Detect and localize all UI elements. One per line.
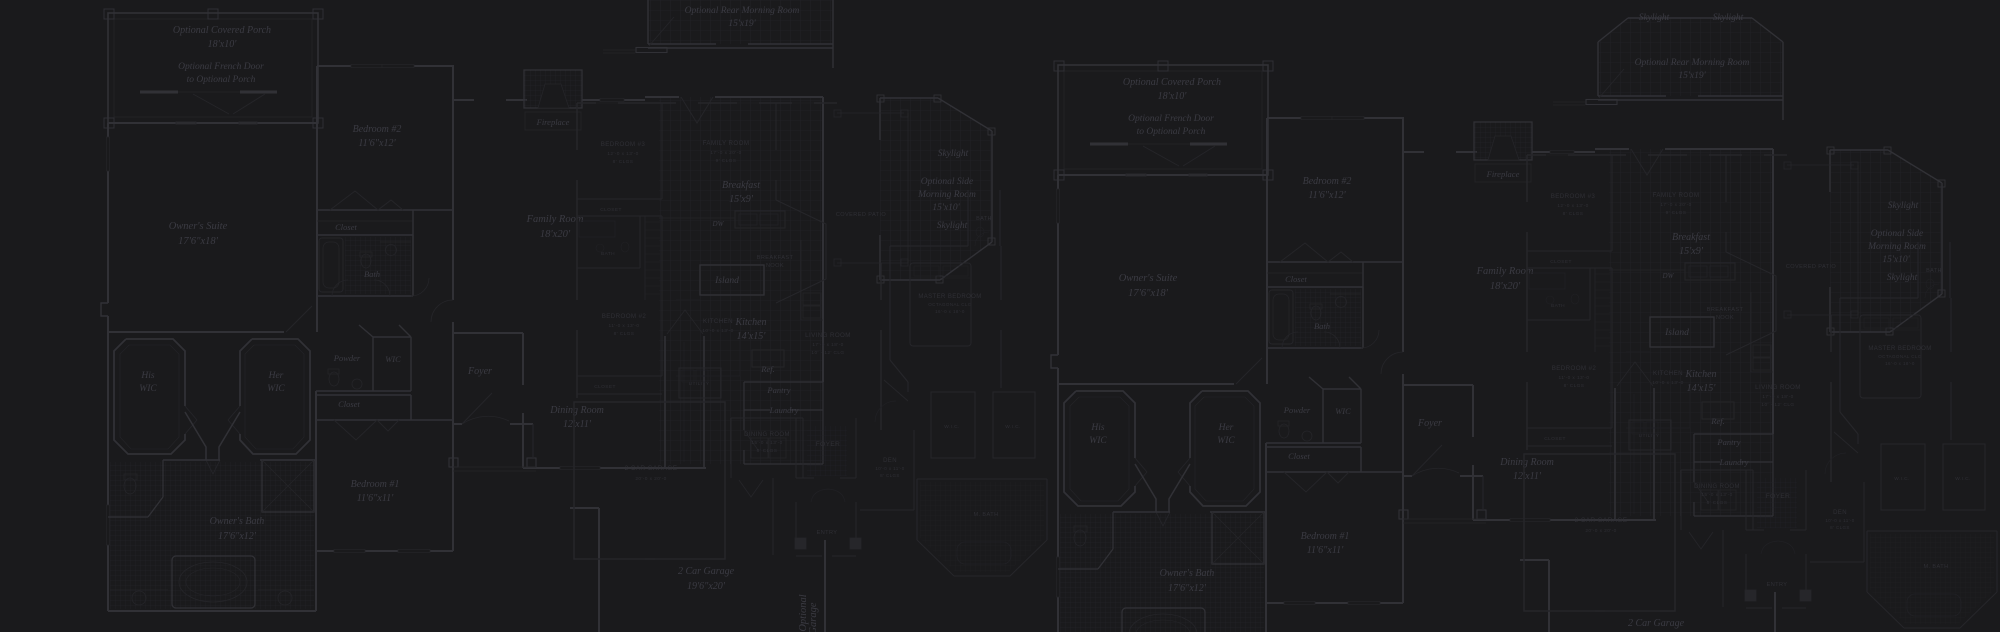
svg-text:Optional Side: Optional Side (1871, 229, 1924, 239)
svg-text:9' CLGS: 9' CLGS (716, 158, 737, 164)
svg-text:Dining Room: Dining Room (1499, 457, 1554, 468)
svg-text:NOOK: NOOK (766, 263, 784, 269)
svg-text:Laundry: Laundry (769, 405, 799, 415)
svg-text:BATH: BATH (601, 251, 615, 257)
svg-text:10' - 12' CLG: 10' - 12' CLG (811, 350, 844, 356)
svg-text:Pantry: Pantry (1716, 437, 1740, 447)
svg-text:DEN: DEN (1833, 510, 1847, 516)
svg-text:BATH: BATH (976, 216, 992, 222)
svg-text:Closet: Closet (1288, 451, 1310, 461)
svg-text:15'x10': 15'x10' (1882, 255, 1910, 265)
svg-text:Breakfast: Breakfast (1672, 232, 1710, 243)
svg-text:17'-0 x 20'-0: 17'-0 x 20'-0 (710, 150, 741, 156)
svg-text:ENTRY: ENTRY (817, 530, 838, 536)
svg-text:17'6"x18': 17'6"x18' (1128, 288, 1169, 299)
svg-text:W.I.C.: W.I.C. (1955, 476, 1970, 482)
svg-text:17'6"x18': 17'6"x18' (178, 236, 219, 247)
svg-text:WIC: WIC (1335, 406, 1351, 416)
svg-text:His: His (1090, 423, 1105, 433)
svg-text:FOYER: FOYER (1766, 493, 1790, 500)
svg-text:11'6"x12': 11'6"x12' (358, 138, 396, 149)
svg-text:Bath: Bath (364, 269, 380, 279)
svg-text:Family Room: Family Room (526, 214, 584, 225)
svg-text:Closet: Closet (335, 222, 357, 232)
svg-text:LIVING ROOM: LIVING ROOM (805, 332, 851, 339)
svg-text:17'-0 x 20'-0: 17'-0 x 20'-0 (1660, 202, 1691, 208)
svg-text:Skylight: Skylight (1887, 273, 1918, 283)
svg-text:Morning Room: Morning Room (917, 190, 976, 200)
svg-text:15'x19': 15'x19' (1678, 71, 1706, 81)
svg-text:19'6"x20': 19'6"x20' (687, 581, 726, 592)
svg-text:18'x20': 18'x20' (1490, 281, 1521, 292)
svg-text:Breakfast: Breakfast (722, 180, 760, 191)
svg-text:Kitchen: Kitchen (1684, 369, 1716, 380)
svg-text:10'-0 x 13'-0: 10'-0 x 13'-0 (702, 328, 733, 334)
svg-text:11'-0 x 13'-0: 11'-0 x 13'-0 (1559, 375, 1590, 381)
svg-text:8' CLGS: 8' CLGS (1830, 525, 1850, 530)
svg-text:Kitchen: Kitchen (734, 317, 766, 328)
svg-text:8' CLGS: 8' CLGS (880, 473, 900, 478)
svg-text:17'6"x12': 17'6"x12' (218, 531, 257, 542)
svg-text:17'-0 x 18'-0: 17'-0 x 18'-0 (812, 342, 843, 348)
svg-text:15'-0 x 13'-0: 15'-0 x 13'-0 (751, 440, 782, 446)
svg-text:COVERED PATIO: COVERED PATIO (836, 212, 887, 218)
svg-text:15'-0 x 13'-0: 15'-0 x 13'-0 (1701, 492, 1732, 498)
svg-text:DW: DW (1662, 272, 1675, 280)
svg-text:Dining Room: Dining Room (549, 405, 604, 416)
svg-text:WIC: WIC (267, 384, 285, 394)
svg-text:18'x10': 18'x10' (208, 39, 238, 50)
svg-text:WIC: WIC (139, 384, 157, 394)
svg-text:Bedroom #2: Bedroom #2 (353, 124, 402, 135)
svg-text:Ref.: Ref. (1710, 416, 1724, 426)
svg-text:20'-0 x 20'-0: 20'-0 x 20'-0 (635, 476, 666, 482)
svg-text:FAMILY ROOM: FAMILY ROOM (1653, 192, 1700, 199)
svg-text:15'x9': 15'x9' (729, 194, 754, 205)
svg-text:Ref.: Ref. (760, 364, 774, 374)
svg-text:Foyer: Foyer (1417, 418, 1442, 429)
svg-text:8' CLGS: 8' CLGS (1564, 383, 1585, 389)
svg-text:12'x11': 12'x11' (1513, 471, 1542, 482)
svg-text:Island: Island (714, 276, 739, 286)
svg-text:Laundry: Laundry (1719, 457, 1749, 467)
svg-text:Bedroom #1: Bedroom #1 (351, 479, 400, 490)
svg-text:FOYER: FOYER (816, 441, 840, 448)
svg-text:15'x9': 15'x9' (1679, 246, 1704, 257)
svg-text:Powder: Powder (1283, 405, 1311, 415)
svg-text:10'-0 x 11'-0: 10'-0 x 11'-0 (1825, 518, 1854, 523)
svg-text:Bedroom #1: Bedroom #1 (1301, 531, 1350, 542)
svg-text:BREAKFAST: BREAKFAST (757, 255, 794, 261)
svg-text:to Optional Porch: to Optional Porch (1137, 127, 1206, 137)
svg-text:14'x15': 14'x15' (1687, 383, 1717, 394)
svg-text:Pantry: Pantry (766, 385, 790, 395)
svg-text:Owner's Suite: Owner's Suite (1119, 273, 1178, 284)
svg-text:Her: Her (268, 371, 284, 381)
svg-text:OCTAGONAL CLG: OCTAGONAL CLG (928, 302, 972, 307)
svg-text:2 CAR GARAGE: 2 CAR GARAGE (1575, 517, 1628, 524)
svg-text:Optional French Door: Optional French Door (1128, 114, 1214, 124)
svg-text:WIC: WIC (1089, 436, 1107, 446)
svg-text:12'x11': 12'x11' (563, 419, 592, 430)
svg-text:20'-0 x 20'-0: 20'-0 x 20'-0 (1585, 528, 1616, 534)
svg-text:16'-0 x 18'-0: 16'-0 x 18'-0 (935, 309, 965, 314)
svg-text:15'x10': 15'x10' (932, 203, 960, 213)
svg-text:DW: DW (712, 220, 725, 228)
svg-text:8' CLGS: 8' CLGS (1563, 211, 1584, 217)
svg-text:Powder: Powder (333, 353, 361, 363)
svg-text:2 CAR GARAGE: 2 CAR GARAGE (625, 465, 678, 472)
svg-text:11'6"x11': 11'6"x11' (357, 493, 394, 504)
svg-text:CLOSET: CLOSET (594, 384, 616, 390)
svg-text:to Optional Porch: to Optional Porch (187, 75, 256, 85)
svg-text:Optional Rear Morning Room: Optional Rear Morning Room (1635, 58, 1750, 68)
svg-text:18'x10': 18'x10' (1158, 91, 1188, 102)
svg-text:W.I.C.: W.I.C. (1894, 476, 1909, 482)
svg-text:Skylight: Skylight (1639, 13, 1670, 23)
svg-text:Bath: Bath (1314, 321, 1330, 331)
svg-text:CLOSET: CLOSET (1544, 436, 1566, 442)
svg-text:BEDROOM #3: BEDROOM #3 (1551, 193, 1596, 200)
svg-text:10' - 12' CLG: 10' - 12' CLG (1761, 402, 1794, 408)
svg-text:2 Car Garage: 2 Car Garage (678, 566, 735, 577)
svg-text:MASTER BEDROOM: MASTER BEDROOM (1868, 346, 1931, 352)
svg-text:17'6"x12': 17'6"x12' (1168, 583, 1207, 594)
svg-text:12'-0 x 13'-0: 12'-0 x 13'-0 (1557, 203, 1588, 209)
svg-text:Fireplace: Fireplace (1486, 169, 1520, 179)
svg-text:15'x19': 15'x19' (728, 19, 756, 29)
svg-text:BEDROOM #2: BEDROOM #2 (602, 313, 647, 320)
svg-text:Morning Room: Morning Room (1867, 242, 1926, 252)
svg-text:BREAKFAST: BREAKFAST (1707, 307, 1744, 313)
svg-text:Optional French Door: Optional French Door (178, 62, 264, 72)
svg-text:BEDROOM #2: BEDROOM #2 (1552, 365, 1597, 372)
svg-text:16'-0 x 18'-0: 16'-0 x 18'-0 (1885, 361, 1915, 366)
svg-text:BEDROOM #3: BEDROOM #3 (601, 141, 646, 148)
svg-text:12'-0 x 13'-0: 12'-0 x 13'-0 (607, 151, 638, 157)
svg-text:Skylight: Skylight (1888, 201, 1919, 211)
svg-text:Skylight: Skylight (1713, 13, 1744, 23)
svg-text:Owner's Bath: Owner's Bath (210, 516, 265, 527)
svg-text:W.I.C.: W.I.C. (1005, 424, 1020, 430)
svg-text:WIC: WIC (385, 354, 401, 364)
svg-text:11'6"x12': 11'6"x12' (1308, 190, 1346, 201)
svg-text:2 Car Garage: 2 Car Garage (1628, 618, 1685, 629)
svg-text:His: His (140, 371, 155, 381)
svg-text:Family Room: Family Room (1476, 266, 1534, 277)
svg-text:8' CLGS: 8' CLGS (613, 159, 634, 165)
svg-text:COVERED PATIO: COVERED PATIO (1786, 264, 1837, 270)
svg-text:DINING ROOM: DINING ROOM (1694, 484, 1740, 490)
svg-text:ENTRY: ENTRY (1767, 582, 1788, 588)
svg-text:MASTER BEDROOM: MASTER BEDROOM (918, 294, 981, 300)
svg-text:14'x15': 14'x15' (737, 331, 767, 342)
svg-text:Optional Side: Optional Side (921, 177, 974, 187)
svg-text:CLOSET: CLOSET (600, 207, 622, 213)
svg-text:CLOSET: CLOSET (1550, 259, 1572, 265)
svg-text:10'-0 x 11'-0: 10'-0 x 11'-0 (875, 466, 904, 471)
svg-text:Optional Rear Morning Room: Optional Rear Morning Room (685, 6, 800, 16)
svg-text:Bedroom #2: Bedroom #2 (1303, 176, 1352, 187)
svg-text:Side Load Garage: Side Load Garage (808, 602, 819, 632)
svg-text:NOOK: NOOK (1716, 315, 1734, 321)
svg-text:Her: Her (1218, 423, 1234, 433)
svg-text:Skylight: Skylight (937, 221, 968, 231)
svg-text:11'6"x11': 11'6"x11' (1307, 545, 1344, 556)
svg-text:BATH: BATH (1551, 303, 1565, 309)
svg-text:11'-0 x 13'-0: 11'-0 x 13'-0 (609, 323, 640, 329)
svg-text:18'x20': 18'x20' (540, 229, 571, 240)
svg-text:8' CLGS: 8' CLGS (614, 331, 635, 337)
svg-text:W.I.C.: W.I.C. (944, 424, 959, 430)
svg-text:Closet: Closet (338, 399, 360, 409)
svg-text:KITCHEN: KITCHEN (1653, 370, 1683, 377)
svg-text:Skylight: Skylight (938, 149, 969, 159)
svg-text:FAMILY ROOM: FAMILY ROOM (703, 140, 750, 147)
svg-text:10'-0 x 13'-0: 10'-0 x 13'-0 (1652, 380, 1683, 386)
svg-text:BATH: BATH (1926, 268, 1942, 274)
svg-text:Fireplace: Fireplace (536, 117, 570, 127)
svg-text:17'-0 x 18'-0: 17'-0 x 18'-0 (1762, 394, 1793, 400)
svg-text:Foyer: Foyer (467, 366, 492, 377)
svg-text:Optional Covered Porch: Optional Covered Porch (1123, 77, 1221, 88)
svg-text:8' CLGS: 8' CLGS (1707, 500, 1728, 506)
svg-text:Optional Covered Porch: Optional Covered Porch (173, 25, 271, 36)
svg-text:Owner's Suite: Owner's Suite (169, 221, 228, 232)
svg-text:9' CLGS: 9' CLGS (1666, 210, 1687, 216)
svg-text:8' CLGS: 8' CLGS (757, 448, 778, 454)
svg-text:DEN: DEN (883, 458, 897, 464)
svg-text:WIC: WIC (1217, 436, 1235, 446)
svg-text:Owner's Bath: Owner's Bath (1160, 568, 1215, 579)
svg-text:KITCHEN: KITCHEN (703, 318, 733, 325)
svg-text:DINING ROOM: DINING ROOM (744, 432, 790, 438)
svg-text:LIVING ROOM: LIVING ROOM (1755, 384, 1801, 391)
svg-text:Closet: Closet (1285, 274, 1307, 284)
svg-text:Island: Island (1664, 328, 1689, 338)
svg-text:OCTAGONAL CLG: OCTAGONAL CLG (1878, 354, 1922, 359)
